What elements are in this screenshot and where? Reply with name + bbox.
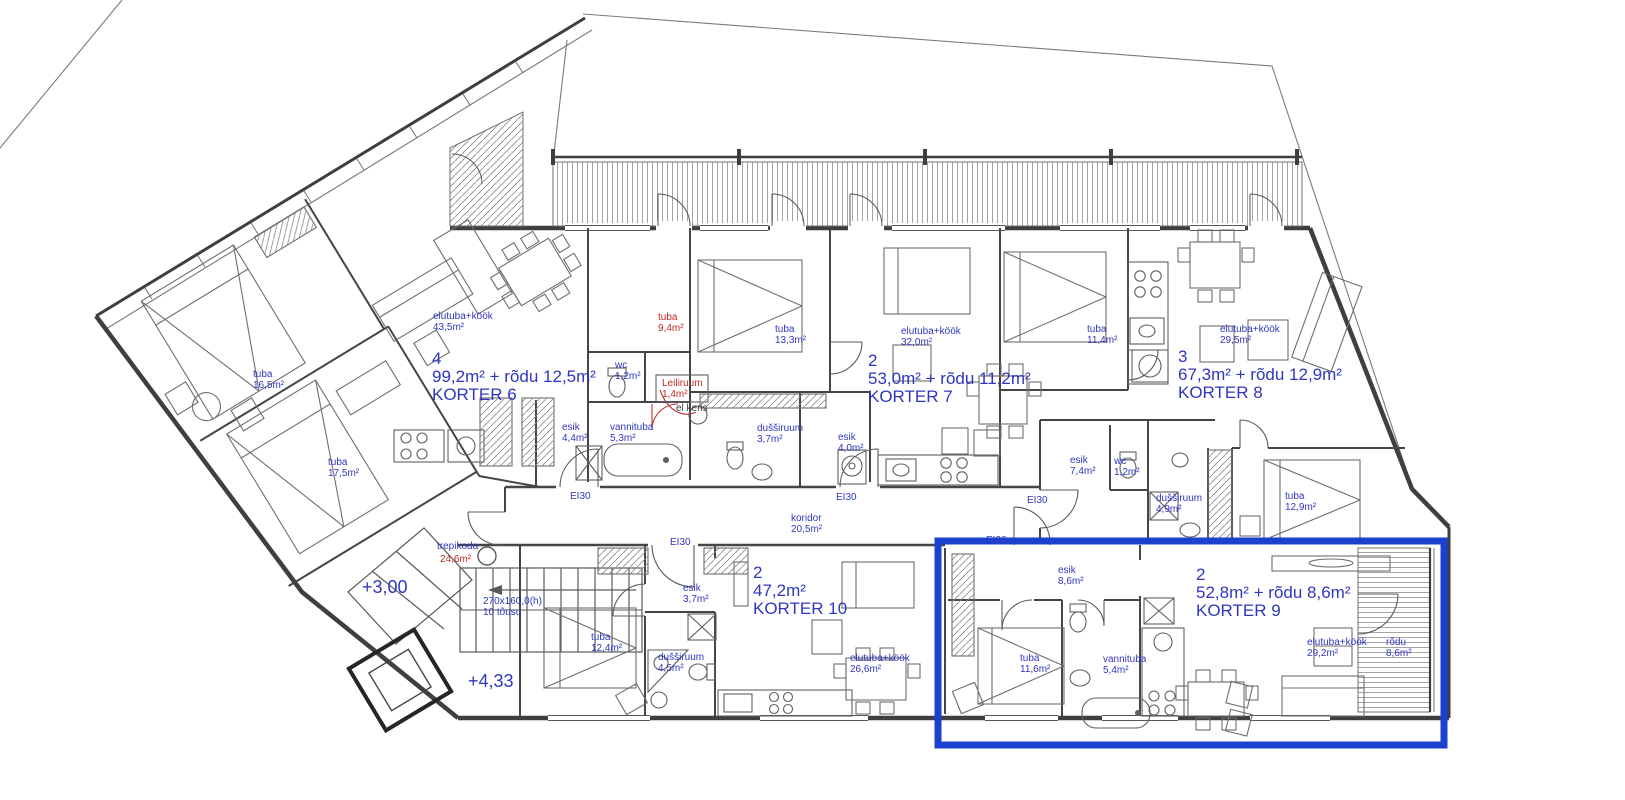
room-label-el keris: el keris — [676, 403, 708, 414]
stair-dimension-note: 270x160,0(h) 10 tõusu — [483, 596, 542, 618]
fire-rating-label-3: EI30 — [1027, 495, 1048, 506]
room-label-vannituba: vannituba 5,3m² — [610, 422, 653, 444]
room-label-elutuba+köök: elutuba+köök 43,5m² — [433, 311, 493, 333]
apartment-label-korter-7[interactable]: 2 53,0m² + rõdu 11,2m² KORTER 7 — [868, 352, 1031, 406]
room-label-elutuba+köök: elutuba+köök 32,0m² — [901, 326, 961, 348]
fire-rating-label-4: EI30 — [986, 535, 1007, 546]
apartment-label-korter-8[interactable]: 3 67,3m² + rõdu 12,9m² KORTER 8 — [1178, 348, 1342, 402]
labels-layer: 4 99,2m² + rõdu 12,5m² KORTER 62 53,0m² … — [0, 0, 1625, 800]
room-label-esik: esik 4,0m² — [838, 432, 864, 454]
room-label-wc: wc 1,2m² — [1114, 456, 1140, 478]
room-label-leiliruum: Leiliruum 1,4m² — [662, 378, 703, 400]
room-label-rõdu: rõdu 8,6m² — [1386, 637, 1412, 659]
room-label-esik: esik 4,4m² — [562, 422, 588, 444]
room-label-elutuba+köök: elutuba+köök 26,6m² — [850, 653, 910, 675]
room-label-koridor: koridor 20,5m² — [791, 513, 822, 535]
room-label-tuba: tuba 9,4m² — [658, 312, 684, 334]
room-label-tuba: tuba 16,5m² — [253, 369, 284, 391]
room-label-tuba: tuba 12,4m² — [591, 632, 622, 654]
elevation-mark-0: +3,00 — [362, 578, 408, 596]
room-label-elutuba+köök: elutuba+köök 29,5m² — [1220, 324, 1280, 346]
room-label-tuba: tuba 12,9m² — [1285, 491, 1316, 513]
apartment-label-korter-9[interactable]: 2 52,8m² + rõdu 8,6m² KORTER 9 — [1196, 566, 1351, 620]
room-label-esik: esik 8,6m² — [1058, 565, 1084, 587]
room-label-wc: wc 1,2m² — [615, 360, 641, 382]
room-label-esik: esik 3,7m² — [683, 583, 709, 605]
room-label-tuba: tuba 11,4m² — [1087, 324, 1117, 346]
room-label-vannituba: vannituba 5,4m² — [1103, 654, 1146, 676]
room-label-trepikoda: trepikoda — [437, 541, 478, 552]
room-label-tuba: tuba 17,5m² — [328, 457, 359, 479]
room-label-dušširuum: dušširuum 3,7m² — [757, 423, 803, 445]
floor-plan: 4 99,2m² + rõdu 12,5m² KORTER 62 53,0m² … — [0, 0, 1625, 800]
apartment-label-korter-6[interactable]: 4 99,2m² + rõdu 12,5m² KORTER 6 — [432, 350, 596, 404]
room-label-elutuba+köök: elutuba+köök 29,2m² — [1307, 637, 1367, 659]
room-label-dušširuum: dušširuum 4,9m² — [1156, 493, 1202, 515]
fire-rating-label-2: EI30 — [836, 492, 857, 503]
room-label-tuba: tuba 11,6m² — [1020, 653, 1050, 675]
room-label-esik: esik 7,4m² — [1070, 455, 1096, 477]
room-label-24,6m²: 24,6m² — [440, 554, 471, 565]
elevation-mark-1: +4,33 — [468, 672, 514, 690]
room-label-tuba: tuba 13,3m² — [775, 324, 806, 346]
fire-rating-label-1: EI30 — [670, 537, 691, 548]
fire-rating-label-0: EI30 — [570, 491, 591, 502]
room-label-dušširuum: dušširuum 4,5m² — [658, 652, 704, 674]
apartment-label-korter-10[interactable]: 2 47,2m² KORTER 10 — [753, 564, 847, 618]
